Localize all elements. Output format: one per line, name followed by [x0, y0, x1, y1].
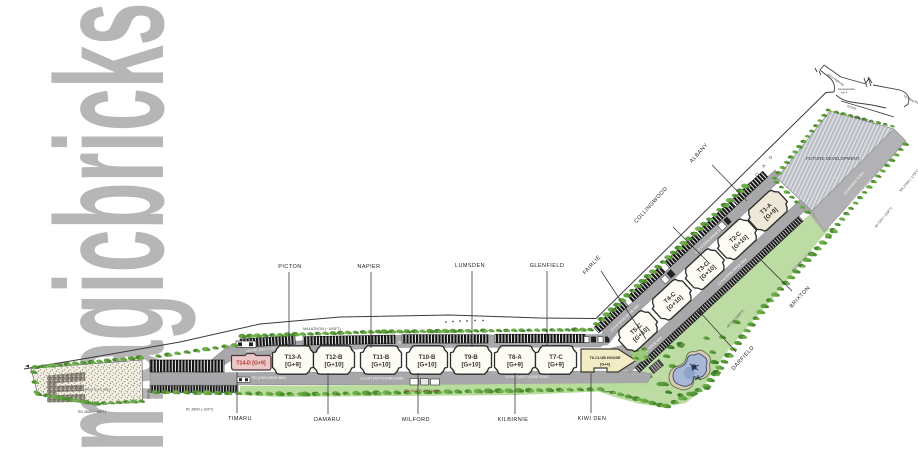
- svg-text:[G+10]: [G+10]: [461, 361, 480, 368]
- svg-text:GLENFIELD: GLENFIELD: [530, 263, 565, 269]
- svg-text:FUTURE DEVELOPMENT: FUTURE DEVELOPMENT: [806, 156, 860, 161]
- svg-text:T7-C: T7-C: [549, 354, 563, 361]
- svg-text:T12-B: T12-B: [326, 354, 344, 361]
- svg-text:T9-B: T9-B: [464, 354, 478, 361]
- svg-text:[G+9]: [G+9]: [548, 361, 564, 368]
- svg-text:T13-A: T13-A: [285, 354, 303, 361]
- svg-text:MILFORD: MILFORD: [402, 417, 430, 423]
- svg-text:KIWI DEN: KIWI DEN: [578, 416, 607, 422]
- svg-text:KILBIRNIE: KILBIRNIE: [498, 417, 529, 423]
- svg-text:[G+9]: [G+9]: [507, 361, 523, 368]
- svg-text:1BT NERVE PLUS AREA: 1BT NERVE PLUS AREA: [76, 388, 112, 392]
- svg-text:T6-CLUB HOUSE: T6-CLUB HOUSE: [590, 356, 621, 360]
- svg-text:12.0 MT (40 FT) WIDE ROAD: 12.0 MT (40 FT) WIDE ROAD: [505, 375, 549, 379]
- svg-text:T11-B: T11-B: [373, 354, 390, 361]
- svg-text:[G+9]: [G+9]: [285, 361, 301, 368]
- svg-text:9M RD: 9M RD: [146, 389, 150, 400]
- svg-text:[G+10]: [G+10]: [417, 361, 436, 368]
- svg-text:MALATHON (~160FT): MALATHON (~160FT): [303, 327, 341, 331]
- svg-text:T10-B: T10-B: [419, 354, 437, 361]
- svg-text:Kempegowda: Kempegowda: [838, 87, 855, 91]
- svg-text:12.0 MT (40 FT) WIDE ROAD: 12.0 MT (40 FT) WIDE ROAD: [360, 377, 404, 381]
- svg-text:TRI KIDS PLAY (LAWN): TRI KIDS PLAY (LAWN): [404, 389, 439, 393]
- svg-text:RL.280N (~92FT): RL.280N (~92FT): [186, 408, 213, 412]
- svg-text:NAPIER: NAPIER: [357, 264, 380, 270]
- svg-text:T8-A: T8-A: [508, 354, 522, 361]
- svg-text:TIMARU: TIMARU: [228, 416, 252, 422]
- svg-text:[G+10]: [G+10]: [324, 361, 343, 368]
- svg-text:[G+10]: [G+10]: [371, 361, 390, 368]
- svg-text:RS.280M (~92FT): RS.280M (~92FT): [78, 410, 106, 414]
- svg-text:Intl ✈: Intl ✈: [841, 91, 848, 95]
- svg-text:PICTON: PICTON: [278, 264, 301, 270]
- svg-text:T14-D [G+9]: T14-D [G+9]: [236, 361, 266, 367]
- svg-text:OAMARU: OAMARU: [314, 417, 341, 423]
- svg-text:[G+4]: [G+4]: [600, 363, 611, 367]
- svg-text:LUMSDEN: LUMSDEN: [455, 263, 485, 269]
